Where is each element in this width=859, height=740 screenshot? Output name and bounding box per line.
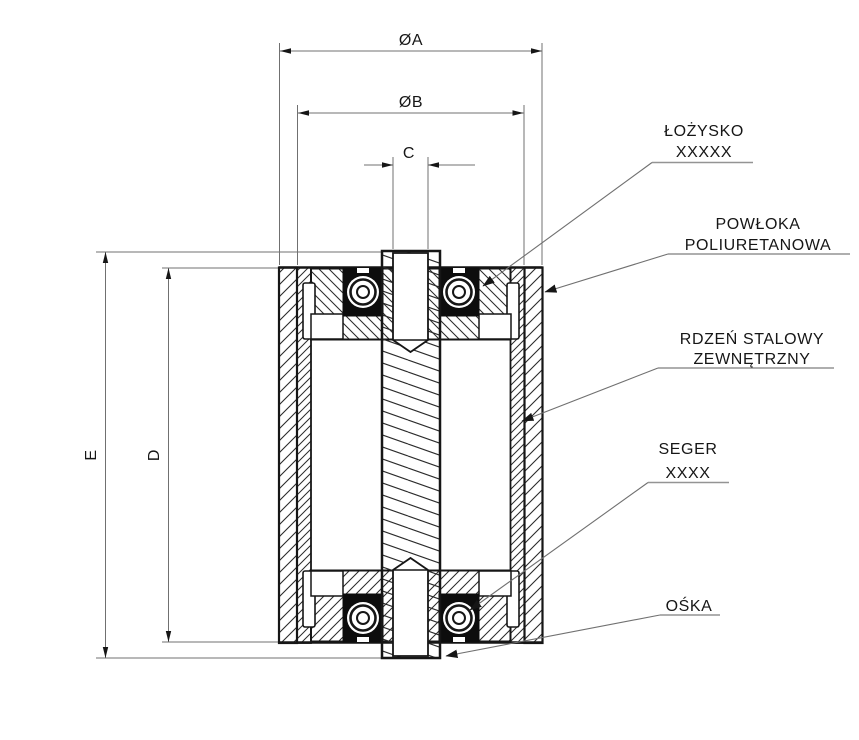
dim-label-overall-height: E [83,449,100,460]
technical-drawing-page: ØA ØB C E D [0,0,859,740]
dim-label-roller-height: D [146,449,163,461]
leader-bearing [483,163,652,287]
axle-shaft [382,251,440,658]
leader-coating [545,254,668,292]
leader-circlip [470,483,648,611]
callout-coating-line2: POLIURETANOWA [685,237,831,254]
callout-bearing-line2: XXXXX [676,144,732,161]
dim-ob-lines [298,105,525,265]
callout-core-line1: RDZEŃ STALOWY [680,329,824,348]
axle-bore-bottom [393,558,428,656]
callout-coating-line1: POWŁOKA [715,216,800,233]
dim-label-bore: C [403,145,415,162]
dim-label-core-diameter: ØB [399,94,423,111]
dimension-lines [96,43,542,658]
polyurethane-coating-left [279,268,297,644]
callout-bearing-line1: ŁOŻYSKO [664,121,744,140]
axle-bore-top [393,253,428,352]
polyurethane-coating-right [525,268,543,644]
dim-label-outer-diameter: ØA [399,32,423,49]
dim-d-lines [162,268,278,642]
dim-c-lines [364,157,475,249]
callout-axle: OŚKA [666,596,713,615]
bearing-top-right [439,268,479,316]
callout-circlip-line2: XXXX [665,465,710,482]
bearing-bottom-right [439,594,479,642]
bearing-top-left [343,268,383,316]
roller-cross-section-drawing: ØA ØB C E D [0,0,859,740]
callout-core-line2: ZEWNĘTRZNY [693,351,810,368]
callout-circlip-line1: SEGER [658,441,717,458]
bearing-bottom-left [343,594,383,642]
